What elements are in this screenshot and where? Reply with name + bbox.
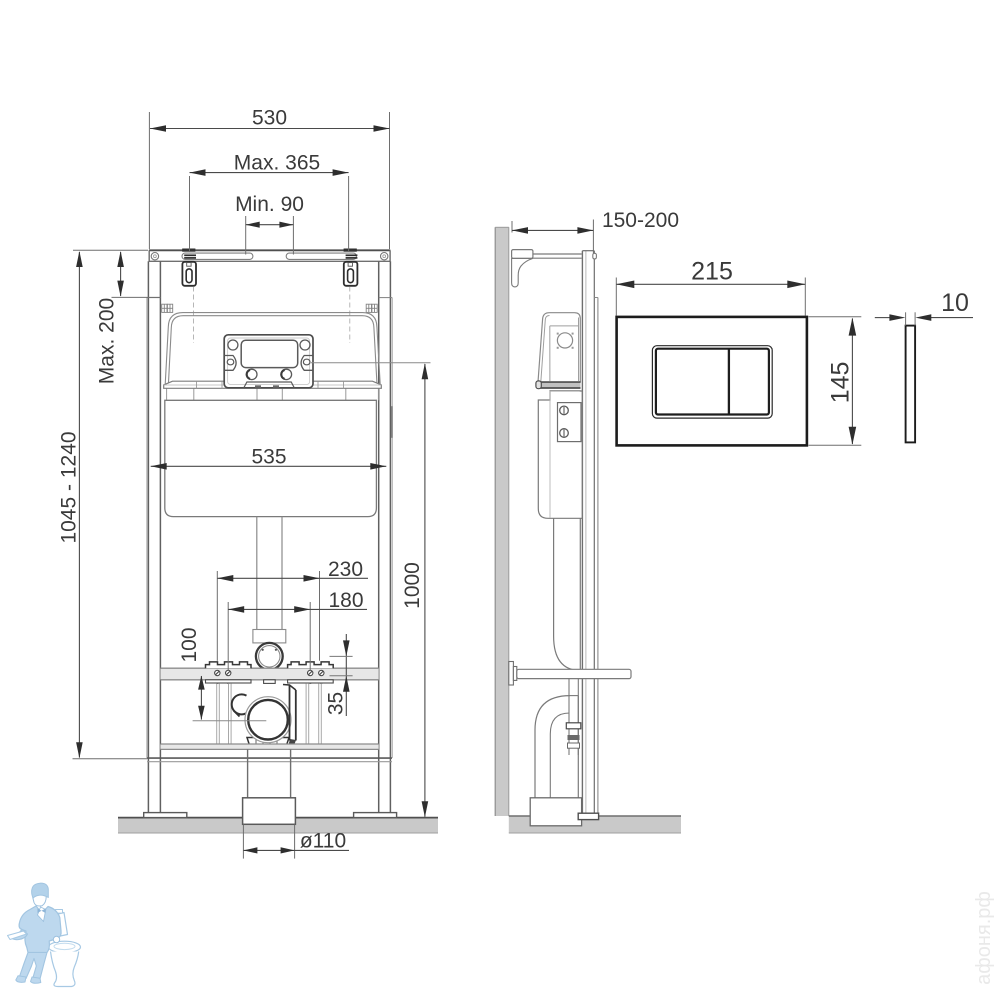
svg-text:150-200: 150-200: [602, 209, 679, 232]
svg-text:1045 - 1240: 1045 - 1240: [58, 431, 81, 543]
svg-text:230: 230: [328, 558, 363, 581]
svg-text:530: 530: [252, 107, 287, 130]
svg-text:ø110: ø110: [300, 829, 346, 852]
svg-text:Min. 90: Min. 90: [235, 193, 304, 216]
svg-text:Max. 365: Max. 365: [234, 151, 320, 174]
svg-text:100: 100: [178, 627, 201, 662]
svg-text:215: 215: [691, 258, 733, 286]
svg-text:1000: 1000: [401, 562, 424, 609]
svg-text:180: 180: [328, 589, 363, 612]
svg-text:35: 35: [325, 692, 348, 715]
svg-text:535: 535: [251, 446, 286, 469]
svg-text:Max. 200: Max. 200: [96, 298, 119, 384]
svg-text:10: 10: [941, 289, 969, 317]
svg-text:афоня.рф: афоня.рф: [973, 891, 995, 985]
svg-text:145: 145: [827, 362, 855, 404]
